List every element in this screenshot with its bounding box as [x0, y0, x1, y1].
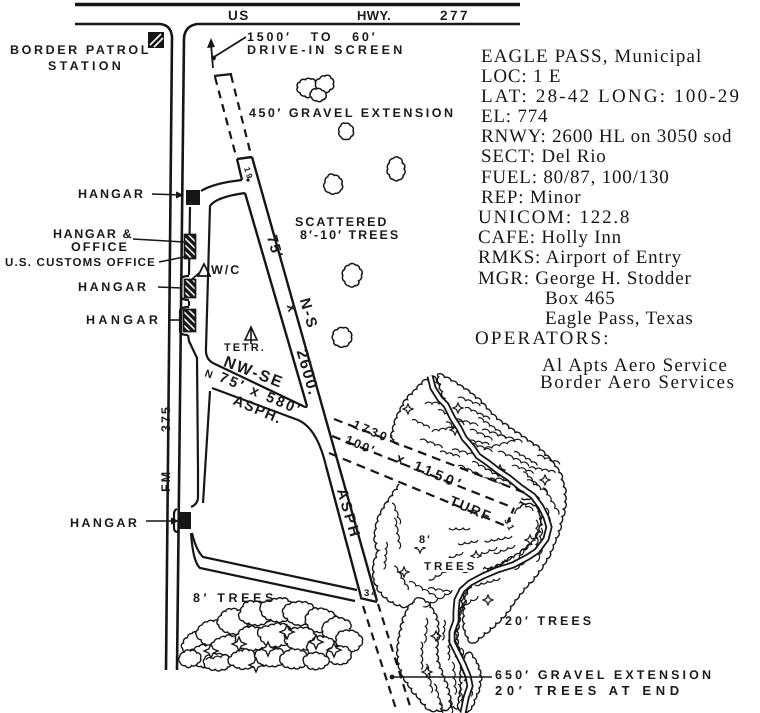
svg-text:US: US	[228, 8, 250, 23]
svg-text:EL: 774: EL: 774	[481, 106, 548, 127]
svg-text:OFFICE: OFFICE	[71, 240, 129, 254]
svg-text:OPERATORS:: OPERATORS:	[475, 328, 611, 349]
svg-text:HWY.: HWY.	[357, 8, 391, 23]
svg-text:1500′ TO 60′: 1500′ TO 60′	[247, 30, 377, 44]
svg-text:TREES: TREES	[424, 561, 477, 573]
svg-text:HANGAR: HANGAR	[78, 280, 148, 294]
svg-text:RNWY: 2600 HL on 3050 sod: RNWY: 2600 HL on 3050 sod	[481, 126, 732, 147]
svg-text:FM: FM	[159, 470, 173, 492]
svg-text:Box 465: Box 465	[545, 288, 616, 309]
svg-text:SECT: Del Rio: SECT: Del Rio	[481, 146, 607, 167]
svg-text:TETR.: TETR.	[224, 342, 266, 354]
svg-text:FUEL: 80/87, 100/130: FUEL: 80/87, 100/130	[481, 167, 670, 188]
svg-text:U.S. CUSTOMS OFFICE: U.S. CUSTOMS OFFICE	[5, 257, 156, 269]
svg-text:375: 375	[159, 405, 173, 432]
svg-text:REP: Minor: REP: Minor	[481, 187, 581, 208]
svg-text:20′ TREES: 20′ TREES	[505, 614, 594, 628]
svg-text:RMKS: Airport of Entry: RMKS: Airport of Entry	[478, 247, 682, 268]
svg-text:EAGLE PASS, Municipal: EAGLE PASS, Municipal	[481, 46, 702, 67]
svg-text:W/C: W/C	[211, 263, 241, 277]
svg-text:CAFE: Holly Inn: CAFE: Holly Inn	[478, 227, 622, 248]
svg-text:450′ GRAVEL EXTENSION: 450′ GRAVEL EXTENSION	[249, 106, 455, 120]
svg-text:HANGAR &: HANGAR &	[53, 227, 133, 241]
svg-text:8′ TREES: 8′ TREES	[193, 591, 277, 605]
svg-text:MGR: George H. Stodder: MGR: George H. Stodder	[478, 268, 692, 289]
svg-text:Border Aero Services: Border Aero Services	[540, 372, 736, 393]
svg-text:BORDER PATROL: BORDER PATROL	[10, 43, 151, 57]
svg-text:HANGAR: HANGAR	[78, 187, 145, 201]
svg-text:34: 34	[364, 588, 379, 599]
svg-text:STATION: STATION	[48, 59, 124, 73]
svg-text:LAT: 28-42 LONG: 100-29: LAT: 28-42 LONG: 100-29	[481, 86, 741, 107]
svg-text:UNICOM: 122.8: UNICOM: 122.8	[478, 207, 631, 228]
svg-text:8′-10′ TREES: 8′-10′ TREES	[300, 228, 400, 242]
svg-text:DRIVE-IN SCREEN: DRIVE-IN SCREEN	[247, 43, 405, 57]
svg-text:HANGAR: HANGAR	[70, 516, 139, 530]
svg-text:HANGAR: HANGAR	[86, 313, 161, 327]
svg-text:Eagle Pass, Texas: Eagle Pass, Texas	[545, 308, 694, 329]
svg-text:8′: 8′	[419, 534, 432, 546]
svg-text:SCATTERED: SCATTERED	[295, 215, 388, 229]
svg-text:650′ GRAVEL EXTENSION: 650′ GRAVEL EXTENSION	[495, 668, 714, 682]
svg-text:20′ TREES AT END: 20′ TREES AT END	[495, 683, 684, 698]
svg-text:LOC: 1 E: LOC: 1 E	[481, 66, 561, 87]
svg-text:N: N	[203, 368, 216, 383]
svg-text:277: 277	[440, 8, 470, 23]
